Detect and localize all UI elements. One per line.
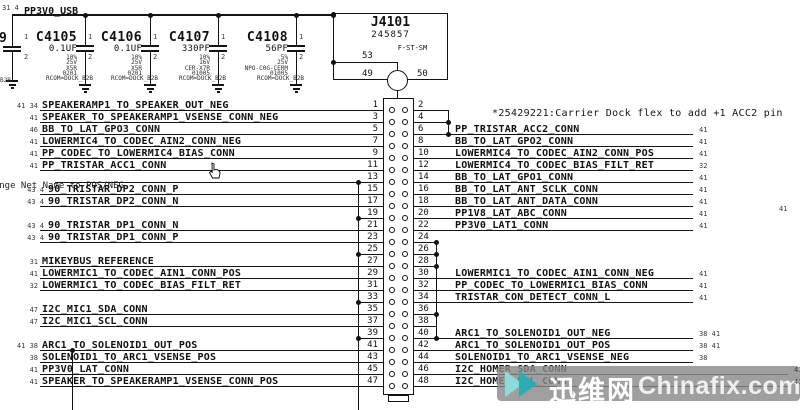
pin-number: 11 xyxy=(352,160,378,170)
connector-pin[interactable] xyxy=(402,335,408,341)
net-label[interactable]: LOWERMIC4_TO_CODEC_BIAS_FILT_RET xyxy=(455,160,654,171)
net-label[interactable]: PP3V0_LAT_CONN xyxy=(42,364,129,375)
capacitor-note: RCOM=DOCK_B2B xyxy=(236,76,304,81)
connector-pin[interactable] xyxy=(389,371,395,377)
net-label[interactable]: PP_TRISTAR_ACC2_CONN xyxy=(455,124,579,135)
pin-number: 17 xyxy=(352,196,378,206)
connector-pin[interactable] xyxy=(402,287,408,293)
junction-dot xyxy=(331,13,336,18)
ground-symbol xyxy=(295,91,298,93)
ref-numbers: 41 34 xyxy=(0,102,38,110)
connector-pin[interactable] xyxy=(402,299,408,305)
junction-dot xyxy=(356,336,361,341)
bus-stub-wire xyxy=(358,302,383,303)
pin-number: 2 xyxy=(418,100,423,110)
net-label[interactable]: MIKEYBUS_REFERENCE xyxy=(42,256,154,267)
connector-pin[interactable] xyxy=(402,227,408,233)
connector-pin[interactable] xyxy=(402,119,408,125)
ref-numbers: 43 4 xyxy=(0,234,44,242)
junction-dot xyxy=(434,336,439,341)
net-label[interactable]: PP_CODEC_TO_LOWERMIC1_BIAS_CONN xyxy=(455,280,648,291)
stub-wire xyxy=(414,326,436,327)
ref-numbers: 41 xyxy=(0,138,38,146)
pin-number: 18 xyxy=(418,196,429,206)
capacitor-ref[interactable]: C4106 xyxy=(72,30,142,45)
pin-number: 16 xyxy=(418,184,429,194)
wire xyxy=(296,16,297,45)
connector-pin[interactable] xyxy=(402,251,408,257)
connector-pin[interactable] xyxy=(389,227,395,233)
ref-numbers: 41 xyxy=(794,378,800,386)
connector-pin[interactable] xyxy=(389,203,395,209)
ground-symbol xyxy=(293,88,300,90)
connector-pin[interactable] xyxy=(402,371,408,377)
partial-cap-ref: 9 xyxy=(0,31,7,46)
connector-pin[interactable] xyxy=(389,167,395,173)
ground-symbol xyxy=(11,87,14,89)
ref-numbers: 41 xyxy=(0,366,38,374)
net-label[interactable]: 90_TRISTAR_DP1_CONN_N xyxy=(48,220,179,231)
ref-numbers: 41 xyxy=(699,210,707,218)
junction-dot xyxy=(83,13,88,18)
net-label[interactable]: 90_TRISTAR_DP1_CONN_P xyxy=(48,232,179,243)
connector-pin[interactable] xyxy=(389,155,395,161)
connector-pin[interactable] xyxy=(389,119,395,125)
ground-symbol xyxy=(84,91,87,93)
capacitor-note: RCOM=DOCK_B2B xyxy=(25,76,93,81)
capacitor-note: RCOM=DOCK_B2B xyxy=(158,76,226,81)
connector-pin[interactable] xyxy=(389,323,395,329)
pin-number: 21 xyxy=(352,220,378,230)
pin-number: 1 xyxy=(352,100,378,110)
connector-pin[interactable] xyxy=(402,263,408,269)
connector-pin[interactable] xyxy=(389,215,395,221)
net-label[interactable]: LOWERMIC4_TO_CODEC_AIN2_CONN_NEG xyxy=(42,136,241,147)
ref-numbers: 41 xyxy=(0,270,38,278)
ground-symbol xyxy=(290,84,302,86)
junction-dot xyxy=(294,13,299,18)
net-label[interactable]: LOWERMIC1_TO_CODEC_AIN1_CONN_NEG xyxy=(455,268,654,279)
ref-numbers: 47 xyxy=(0,318,38,326)
pin-number: 8 xyxy=(418,136,423,146)
watermark-logo-icon xyxy=(503,370,549,402)
connector-pin[interactable] xyxy=(389,263,395,269)
ref-numbers: 41 xyxy=(794,366,800,374)
net-label[interactable]: 90_TRISTAR_DP2_CONN_N xyxy=(48,196,179,207)
connector-pin[interactable] xyxy=(389,359,395,365)
net-label[interactable]: PP1V8_LAT_ABC_CONN xyxy=(455,208,567,219)
pin-number: 7 xyxy=(352,136,378,146)
ref-numbers: 32 xyxy=(0,282,38,290)
connector-pin[interactable] xyxy=(389,143,395,149)
ref-numbers: 43 4 xyxy=(0,198,44,206)
pin-number: 36 xyxy=(418,304,429,314)
capacitor-value: 330PF xyxy=(140,44,210,54)
net-label[interactable]: LOWERMIC4_TO_CODEC_AIN2_CONN_POS xyxy=(455,148,654,159)
junction-dot xyxy=(446,120,451,125)
capacitor-ref[interactable]: C4108 xyxy=(218,30,288,45)
ref-numbers: 41 xyxy=(699,126,707,134)
net-label[interactable]: PP_CODEC_TO_LOWERMIC4_BIAS_CONN xyxy=(42,148,235,159)
partial-cap-pin1: 1 xyxy=(24,33,28,41)
pin-number: 3 xyxy=(352,112,378,122)
pin-number: 40 xyxy=(418,328,429,338)
connector-pin[interactable] xyxy=(402,383,408,389)
watermark-cjk-text: 迅维网 xyxy=(549,369,636,408)
net-label[interactable]: SPEAKERAMP1_TO_SPEAKER_OUT_NEG xyxy=(42,100,229,111)
pin-number: 9 xyxy=(352,148,378,158)
pin-number: 20 xyxy=(418,208,429,218)
connector-pin[interactable] xyxy=(402,131,408,137)
ref-numbers: 41 xyxy=(0,150,38,158)
connector-pin[interactable] xyxy=(402,155,408,161)
junction-dot xyxy=(356,252,361,257)
net-label[interactable]: BB_TO_LAT_ANT_SCLK_CONN xyxy=(455,184,598,195)
ref-numbers: 41 xyxy=(0,162,38,170)
net-label[interactable]: 90_TRISTAR_DP2_CONN_P xyxy=(48,184,179,195)
bus-stub-wire xyxy=(358,254,383,255)
ground-symbol xyxy=(79,84,91,86)
pin-number: 38 xyxy=(418,316,429,326)
cap-pin-number: 1 xyxy=(299,33,303,41)
pin-number: 27 xyxy=(352,256,378,266)
stray-ref: 41 xyxy=(779,205,787,213)
junction-dot xyxy=(356,180,361,185)
connector-pin[interactable] xyxy=(402,191,408,197)
partial-cap-fragment: B2B xyxy=(0,77,11,84)
net-label[interactable]: ARC1_TO_SOLENOID1_OUT_POS xyxy=(455,340,611,351)
pin-number: 46 xyxy=(418,364,429,374)
net-label[interactable]: TRISTAR_CON_DETECT_CONN_L xyxy=(455,292,611,303)
net-label[interactable]: SOLENOID1_TO_ARC1_VSENSE_NEG xyxy=(455,352,629,363)
bus-stub-wire xyxy=(414,266,436,267)
connector-bottom-tab xyxy=(388,395,409,402)
capacitor-value: 56PF xyxy=(218,44,288,54)
ref-numbers: 38 41 xyxy=(699,330,720,338)
junction-dot xyxy=(356,216,361,221)
eco-note: *25429221:Carrier Dock flex to add +1 AC… xyxy=(492,108,783,119)
capacitor-value: 0.1UF xyxy=(72,44,142,54)
junction-dot xyxy=(216,13,221,18)
watermark-site-text: Chinafix.com xyxy=(638,372,800,401)
shell-pin-50: 50 xyxy=(417,69,428,79)
ref-numbers: 41 xyxy=(699,282,707,290)
capacitor-specs: 10%16VCER-X7R01005 xyxy=(150,55,210,77)
connector-pin[interactable] xyxy=(389,179,395,185)
bus-stub-wire xyxy=(414,314,436,315)
cap-pin-number: 2 xyxy=(221,53,225,61)
connector-pin-body xyxy=(383,98,414,395)
net-label[interactable]: BB_TO_LAT_ANT_DATA_CONN xyxy=(455,196,598,207)
connector-pin[interactable] xyxy=(389,299,395,305)
connector-refdes[interactable]: J4101 xyxy=(333,15,448,30)
pin-number: 15 xyxy=(352,184,378,194)
junction-dot xyxy=(148,13,153,18)
cap-pin-number: 2 xyxy=(88,53,92,61)
connector-pin[interactable] xyxy=(389,335,395,341)
net-label[interactable]: SPEAKER_TO_SPEAKERAMP1_VSENSE_CONN_NEG xyxy=(42,112,278,123)
junction-dot xyxy=(434,264,439,269)
connector-pin[interactable] xyxy=(402,239,408,245)
pin-number: 45 xyxy=(352,364,378,374)
connector-pin[interactable] xyxy=(389,311,395,317)
connector-pin[interactable] xyxy=(389,251,395,257)
ref-numbers: 41 xyxy=(699,270,707,278)
capacitor-note: RCOM=DOCK_B2B xyxy=(90,76,158,81)
connector-pin[interactable] xyxy=(389,239,395,245)
connector-pin[interactable] xyxy=(402,323,408,329)
shell-pin-49: 49 xyxy=(362,69,373,79)
ref-numbers: 43 4 xyxy=(0,222,44,230)
bus-stub-wire xyxy=(358,338,383,339)
stub-wire xyxy=(414,110,448,111)
pin-number: 4 xyxy=(418,112,423,122)
connector-pin[interactable] xyxy=(389,275,395,281)
ref-numbers: 38 41 xyxy=(699,342,720,350)
pin-number: 43 xyxy=(352,352,378,362)
junction-dot xyxy=(434,252,439,257)
net-label[interactable]: I2C_MIC1_SCL_CONN xyxy=(42,316,148,327)
pin-number: 14 xyxy=(418,172,429,182)
pin-number: 28 xyxy=(418,256,429,266)
cap-pin-number: 1 xyxy=(88,33,92,41)
power-net-label[interactable]: PP3V0_USB xyxy=(24,6,78,17)
pin-number: 12 xyxy=(418,160,429,170)
ground-symbol xyxy=(149,91,152,93)
capacitor-specs: 5%25VNPO-C0G-CERM01005 xyxy=(228,55,288,77)
pin-number: 44 xyxy=(418,352,429,362)
ref-numbers: 47 xyxy=(0,306,38,314)
pin-number: 47 xyxy=(352,376,378,386)
connector-pin[interactable] xyxy=(389,191,395,197)
connector-pin[interactable] xyxy=(402,275,408,281)
pin-number: 35 xyxy=(352,304,378,314)
bus-stub-wire xyxy=(414,242,436,243)
ref-numbers: 41 xyxy=(699,174,707,182)
power-rail-refs: 31 4 xyxy=(2,4,19,12)
connector-pin[interactable] xyxy=(389,287,395,293)
ground-symbol xyxy=(144,84,156,86)
connector-part-number: 245857 xyxy=(333,30,448,40)
junction-dot xyxy=(331,60,336,65)
ground-symbol xyxy=(217,91,220,93)
shell-pin-53: 53 xyxy=(362,51,373,61)
junction-dot xyxy=(434,240,439,245)
partial-cap-pin2: 2 xyxy=(24,53,28,61)
connector-shell-circle xyxy=(387,70,408,91)
connector-pin[interactable] xyxy=(402,203,408,209)
ref-numbers: 41 xyxy=(699,150,707,158)
connector-pin[interactable] xyxy=(389,131,395,137)
pin-number: 22 xyxy=(418,220,429,230)
pin-number: 5 xyxy=(352,124,378,134)
connector-pin[interactable] xyxy=(402,167,408,173)
pin-number: 42 xyxy=(418,340,429,350)
connector-pin[interactable] xyxy=(402,107,408,113)
junction-dot xyxy=(446,132,451,137)
connector-pin[interactable] xyxy=(402,215,408,221)
pin-number: 10 xyxy=(418,148,429,158)
cap-pin-number: 1 xyxy=(221,33,225,41)
ref-numbers: 31 xyxy=(0,258,38,266)
connector-pin[interactable] xyxy=(402,311,408,317)
net-label[interactable]: BB_TO_LAT_GPO1_CONN xyxy=(455,172,573,183)
pin-number: 6 xyxy=(418,124,423,134)
ref-numbers: 41 xyxy=(699,138,707,146)
cap-pin-number: 2 xyxy=(153,53,157,61)
junction-dot xyxy=(434,312,439,317)
hand-cursor-icon xyxy=(207,162,223,184)
bus-stub-wire xyxy=(358,218,383,219)
cap-plate xyxy=(287,45,305,47)
pin-number: 26 xyxy=(418,244,429,254)
ref-numbers: 38 xyxy=(699,354,707,362)
ref-numbers: 41 xyxy=(699,198,707,206)
ground-symbol xyxy=(147,88,154,90)
net-label[interactable]: PP_TRISTAR_ACC1_CONN xyxy=(42,160,166,171)
capacitor-ref[interactable]: C4105 xyxy=(7,30,77,45)
wire xyxy=(12,51,13,80)
pin-number: 37 xyxy=(352,316,378,326)
pin-number: 31 xyxy=(352,280,378,290)
net-label[interactable]: ARC1_TO_SOLENOID1_OUT_NEG xyxy=(455,328,611,339)
connector-pin[interactable] xyxy=(389,347,395,353)
ground-symbol xyxy=(212,84,224,86)
cap-pin-number: 2 xyxy=(299,53,303,61)
net-label[interactable]: LOWERMIC1_TO_CODEC_AIN1_CONN_POS xyxy=(42,268,241,279)
junction-dot xyxy=(70,348,75,353)
net-label[interactable]: SOLENOID1_TO_ARC1_VSENSE_POS xyxy=(42,352,216,363)
ref-numbers: 41 xyxy=(0,378,38,386)
connector-pin[interactable] xyxy=(402,359,408,365)
pin-number: 30 xyxy=(418,268,429,278)
connector-pin[interactable] xyxy=(389,383,395,389)
connector-pin[interactable] xyxy=(402,143,408,149)
capacitor-ref[interactable]: C4107 xyxy=(140,30,210,45)
stub-wire xyxy=(414,122,448,123)
net-label[interactable]: PP3V0_LAT1_CONN xyxy=(455,220,548,231)
ref-numbers: 43 4 xyxy=(0,186,44,194)
ground-symbol xyxy=(215,88,222,90)
net-label[interactable]: BB_TO_LAT_GPO2_CONN xyxy=(455,136,573,147)
connector-pin[interactable] xyxy=(402,179,408,185)
ref-numbers: 38 xyxy=(0,354,38,362)
pin-number: 48 xyxy=(418,376,429,386)
ref-numbers: 41 xyxy=(699,222,707,230)
bus-stub-wire xyxy=(414,254,436,255)
connector-pin[interactable] xyxy=(389,107,395,113)
ref-numbers: 41 38 xyxy=(0,342,38,350)
ref-numbers: 32 xyxy=(699,162,707,170)
net-label[interactable]: LOWERMIC1_TO_CODEC_BIAS_FILT_RET xyxy=(42,280,241,291)
pin-number: 32 xyxy=(418,280,429,290)
net-label[interactable]: SPEAKER_TO_SPEAKERAMP1_VSENSE_CONN_POS xyxy=(42,376,278,387)
ref-numbers: 41 xyxy=(699,294,707,302)
ref-numbers: 41 xyxy=(699,186,707,194)
connector-pin[interactable] xyxy=(402,347,408,353)
pin-number: 34 xyxy=(418,292,429,302)
schematic-canvas: 31 4 PP3V0_USB 9 1 2 B2B J4101 245857 F-… xyxy=(0,0,800,410)
ref-numbers: 41 xyxy=(0,114,38,122)
junction-dot xyxy=(356,300,361,305)
ref-numbers: 46 xyxy=(0,126,38,134)
capacitor-value: 0.1UF xyxy=(7,44,77,54)
ground-symbol xyxy=(82,88,89,90)
net-label[interactable]: BB_TO_LAT_GPO3_CONN xyxy=(42,124,160,135)
cap-pin-number: 1 xyxy=(153,33,157,41)
pin-number: 23 xyxy=(352,232,378,242)
net-label[interactable]: ARC1_TO_SOLENOID1_OUT_POS xyxy=(42,340,198,351)
pin-number: 29 xyxy=(352,268,378,278)
pin-number: 24 xyxy=(418,232,429,242)
net-label[interactable]: I2C_MIC1_SDA_CONN xyxy=(42,304,148,315)
pin-number: 41 xyxy=(352,340,378,350)
